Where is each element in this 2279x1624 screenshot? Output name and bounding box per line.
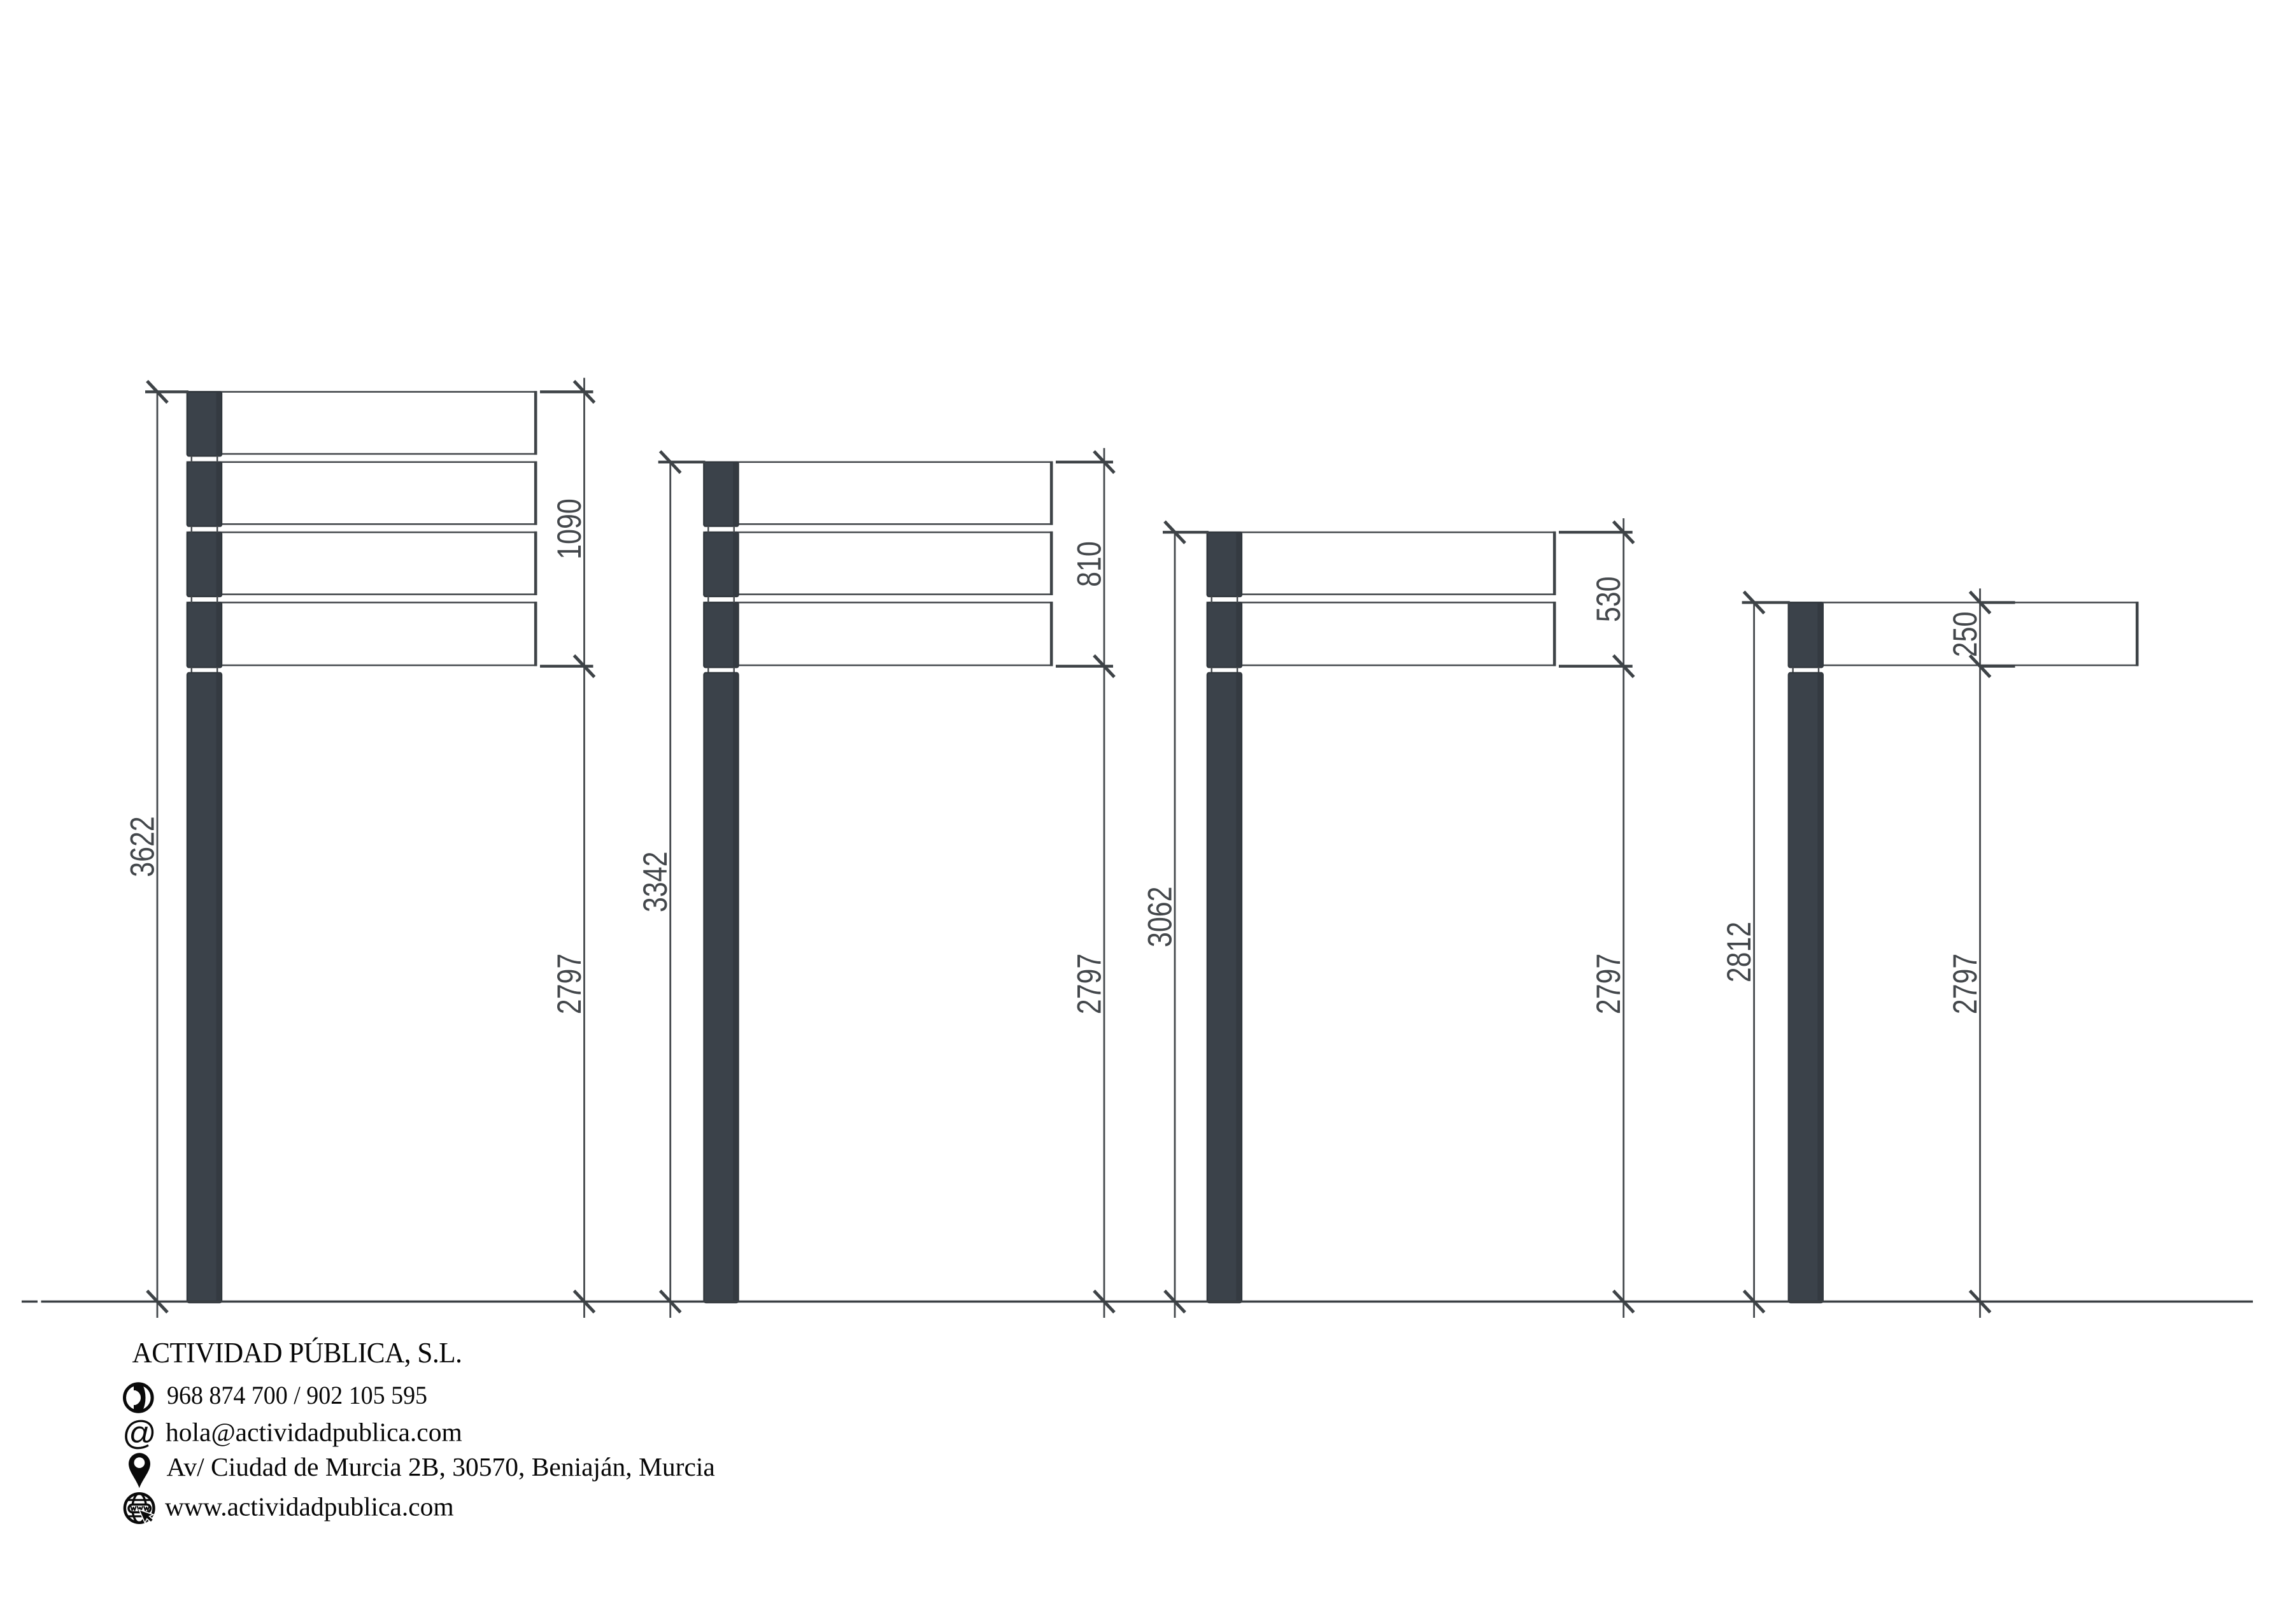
svg-text:2797: 2797	[1947, 954, 1984, 1014]
svg-text:3622: 3622	[124, 816, 161, 877]
svg-text:3062: 3062	[1141, 887, 1179, 947]
svg-text:810: 810	[1070, 541, 1108, 587]
svg-text:Av/ Ciudad de Murcia 2B, 30570: Av/ Ciudad de Murcia 2B, 30570, Beniaján…	[167, 1452, 715, 1481]
svg-text:3342: 3342	[637, 851, 674, 912]
svg-text:hola@actividadpublica.com: hola@actividadpublica.com	[166, 1418, 462, 1447]
svg-text:968 874 700 / 902 105 595: 968 874 700 / 902 105 595	[167, 1381, 427, 1409]
svg-text:ACTIVIDAD PÚBLICA, S.L.: ACTIVIDAD PÚBLICA, S.L.	[132, 1337, 462, 1369]
svg-text:2812: 2812	[1721, 922, 1758, 982]
svg-text:1090: 1090	[551, 498, 588, 559]
svg-text:www.actividadpublica.com: www.actividadpublica.com	[165, 1492, 454, 1522]
svg-text:250: 250	[1947, 612, 1984, 658]
svg-text:2797: 2797	[1590, 954, 1628, 1014]
svg-text:@: @	[122, 1415, 157, 1452]
svg-text:530: 530	[1590, 576, 1628, 622]
svg-text:2797: 2797	[1070, 954, 1108, 1014]
svg-text:2797: 2797	[551, 954, 588, 1014]
